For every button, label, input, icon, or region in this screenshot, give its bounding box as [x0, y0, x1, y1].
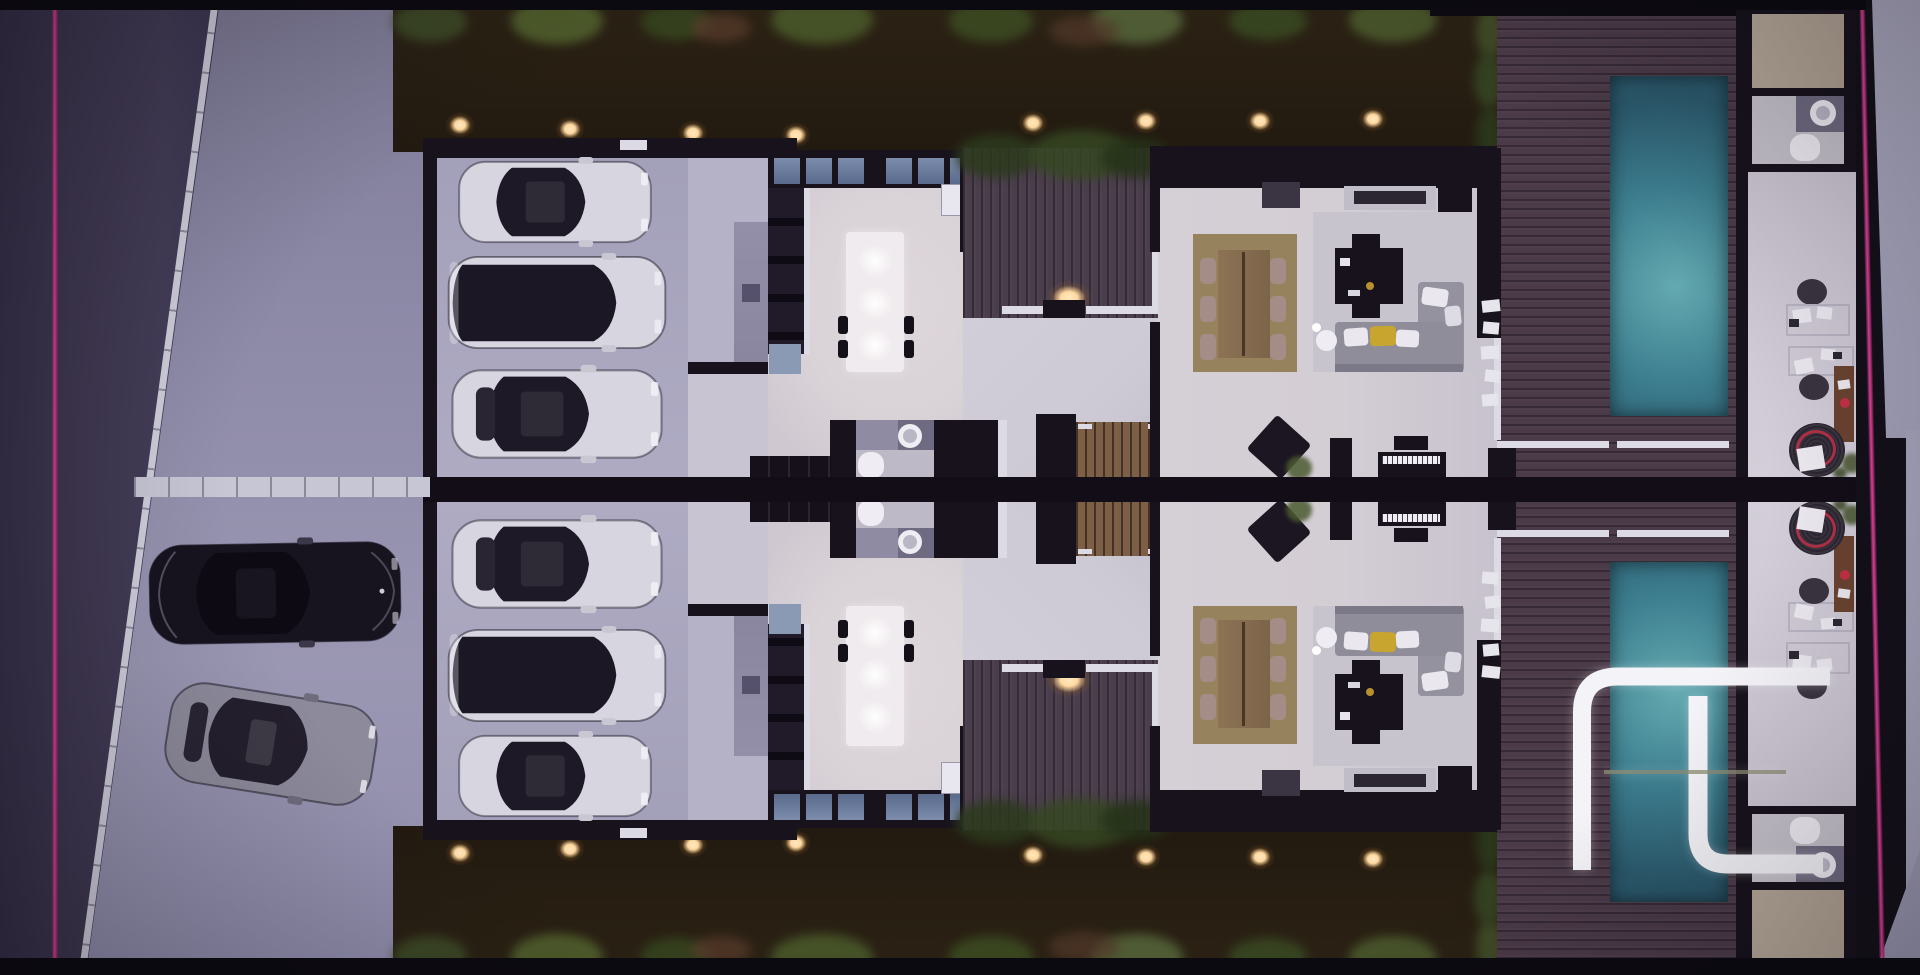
sink-basin: [903, 535, 917, 549]
living-west-wall: [1150, 322, 1160, 480]
media-console: [1344, 768, 1436, 792]
towel: [1481, 618, 1500, 632]
hall-closet: [946, 498, 998, 558]
garden-light: [1358, 106, 1388, 132]
garden-light: [1018, 110, 1048, 136]
table-seam: [1242, 622, 1245, 726]
tray: [1340, 712, 1350, 720]
toilet: [858, 500, 884, 526]
piano-keys: [1382, 514, 1440, 522]
property-line-left: [52, 0, 58, 975]
coffee-table: [1352, 304, 1380, 318]
daybed-cushion: [1796, 445, 1825, 472]
pillow-yellow: [1370, 326, 1397, 347]
towel: [1482, 393, 1499, 406]
bath-wall: [934, 498, 946, 558]
garden-strip: [393, 826, 1497, 972]
decor-bowl: [1366, 282, 1374, 290]
garage-car-suv: [446, 254, 668, 352]
sink-basin: [1816, 106, 1830, 120]
bar-stool: [904, 620, 914, 638]
foliage-red: [1049, 16, 1119, 46]
island-light: [857, 700, 893, 734]
towel: [1483, 643, 1500, 656]
dining-chair: [1270, 694, 1286, 720]
deck-walkway: [963, 148, 1160, 318]
office-chair: [1799, 578, 1829, 604]
towel: [1481, 299, 1500, 313]
bar-stool: [838, 620, 848, 638]
deck-trim: [1497, 441, 1609, 448]
bath-wall: [934, 420, 946, 480]
tv-screen: [1354, 191, 1426, 204]
kitchen-window: [806, 794, 832, 820]
center-walkway: [134, 477, 430, 497]
towel: [1481, 345, 1500, 359]
bottom-frame-bar: [0, 958, 1920, 975]
garden-light: [445, 112, 475, 138]
papers: [1816, 306, 1832, 320]
garden-light: [1131, 108, 1161, 134]
dining-chair: [1270, 618, 1286, 644]
piano-keys: [1382, 456, 1440, 464]
outdoor-sink: [742, 676, 760, 694]
bath-wall: [830, 498, 856, 558]
pillow: [1343, 327, 1368, 347]
garden-light: [1358, 846, 1388, 872]
desk-item: [1833, 619, 1842, 626]
red-decor: [1840, 398, 1850, 408]
garden-light: [445, 840, 475, 866]
coffee-table: [1352, 730, 1380, 744]
dining-chair: [1200, 694, 1216, 720]
decor-bowl: [1366, 688, 1374, 696]
garden-light: [1131, 844, 1161, 870]
office-chair: [1797, 279, 1827, 305]
sink: [1810, 100, 1836, 126]
living-west-wall: [1150, 498, 1160, 656]
sofa-back: [1335, 364, 1463, 372]
side-table: [1316, 330, 1337, 351]
office-chair: [1799, 374, 1829, 400]
counter-edge: [804, 624, 810, 790]
garage-car-suv: [446, 626, 668, 724]
deck-walkway: [963, 660, 1160, 830]
kitchen-window: [838, 158, 864, 184]
napkin: [1837, 379, 1850, 390]
corner-planter: [1488, 448, 1516, 478]
island-light: [857, 286, 893, 320]
garden-light: [1245, 108, 1275, 134]
dining-chair: [1270, 296, 1286, 322]
pillow-yellow: [1370, 632, 1397, 653]
street-car-black: [145, 536, 405, 650]
toilet: [1790, 134, 1820, 161]
stair-nosing: [1078, 424, 1092, 429]
sink: [898, 424, 922, 448]
outdoor-sink: [742, 284, 760, 302]
bath-wall: [830, 420, 856, 480]
island-light: [857, 658, 893, 692]
outdoor-counter: [734, 616, 768, 756]
red-decor: [1840, 570, 1850, 580]
sink: [898, 530, 922, 554]
counter-edge: [804, 188, 810, 354]
hall-closet: [946, 420, 998, 480]
tray: [1348, 290, 1360, 296]
coffee-table: [1352, 234, 1380, 248]
side-table: [1316, 627, 1337, 648]
architectural-render: [0, 0, 1920, 975]
coffee-table: [1335, 674, 1403, 730]
tray: [1340, 258, 1350, 266]
mirror-divider-wall: [423, 477, 1868, 502]
bar-stool: [838, 644, 848, 662]
sofa-back: [1335, 606, 1463, 614]
stair-landing: [1036, 414, 1076, 480]
living-west-wall: [1150, 726, 1160, 790]
towel: [1481, 665, 1500, 679]
garage-side-wall: [423, 138, 437, 480]
garage-car-white-1: [456, 158, 654, 246]
kitchen-window: [774, 158, 800, 184]
storage-room: [1752, 14, 1844, 88]
hall-door: [998, 420, 1007, 478]
side-table-decor: [1312, 646, 1321, 655]
kitchen-window: [774, 794, 800, 820]
desk-item: [1789, 319, 1799, 327]
desk-item: [1833, 352, 1842, 359]
tv-cabinet: [1262, 182, 1300, 208]
wall-column: [1438, 182, 1472, 212]
media-console: [1344, 186, 1436, 210]
pool: [1610, 76, 1728, 416]
table-seam: [1242, 252, 1245, 356]
garage-car-white-2: [446, 516, 668, 612]
dining-chair: [1200, 296, 1216, 322]
logo-monogram: [1548, 638, 1868, 898]
console-table: [1330, 498, 1352, 540]
throw: [1444, 651, 1462, 673]
garden-light: [1018, 842, 1048, 868]
toilet: [858, 452, 884, 478]
napkin: [1837, 588, 1850, 599]
pillow: [1343, 631, 1368, 651]
foliage: [955, 800, 1039, 844]
outdoor-counter: [734, 222, 768, 362]
garage-gate: [620, 828, 647, 838]
dining-table: [1218, 250, 1270, 358]
bar-stool: [838, 340, 848, 358]
tv-cabinet: [1262, 770, 1300, 796]
kitchen-window: [806, 158, 832, 184]
deck-trim: [1086, 306, 1156, 314]
living-front-wall: [1150, 790, 1500, 832]
garden-light: [1245, 844, 1275, 870]
bar-stool: [838, 316, 848, 334]
tv-screen: [1354, 774, 1426, 787]
dining-chair: [1270, 656, 1286, 682]
console-table: [1330, 438, 1352, 480]
kitchen-window: [918, 158, 944, 184]
side-table-decor: [1312, 323, 1321, 332]
deck-trim: [1617, 530, 1729, 537]
island-light: [857, 328, 893, 362]
wall-column: [1438, 766, 1472, 796]
bar-stool: [904, 644, 914, 662]
island-light: [857, 616, 893, 650]
kitchen-counter: [768, 624, 804, 790]
storage-room: [1752, 890, 1844, 964]
towel: [1482, 571, 1499, 584]
garage-side-wall: [423, 498, 437, 840]
pillow: [1396, 329, 1420, 347]
kitchen-window: [886, 158, 912, 184]
pillow: [1396, 630, 1420, 648]
papers: [1794, 357, 1815, 374]
top-frame-bar: [0, 0, 1866, 10]
garage-front-wall: [423, 138, 797, 158]
towel: [1484, 369, 1500, 383]
pillow: [1421, 286, 1449, 307]
corner-planter: [1488, 500, 1516, 530]
kitchen-cabinet: [769, 344, 801, 374]
deck-trim: [1617, 441, 1729, 448]
garage-gate: [620, 140, 647, 150]
tray: [1348, 682, 1360, 688]
pillow: [1421, 670, 1449, 691]
piano-bench: [1394, 528, 1428, 542]
foliage-red: [691, 14, 751, 42]
bar-stool: [904, 316, 914, 334]
coffee-table: [1352, 660, 1380, 674]
deck-trim: [1086, 664, 1156, 672]
dining-chair: [1200, 618, 1216, 644]
kitchen-window: [838, 794, 864, 820]
garage-car-white-2: [446, 366, 668, 462]
logo-stroke-l: [1698, 696, 1823, 864]
dining-chair: [1270, 258, 1286, 284]
kitchen-window: [918, 794, 944, 820]
dining-chair: [1200, 334, 1216, 360]
deck-trim: [1497, 530, 1609, 537]
towel: [1484, 595, 1500, 609]
piano-bench: [1394, 436, 1428, 450]
garage-front-wall: [423, 820, 797, 840]
towel: [1483, 321, 1500, 334]
unit-top: [0, 0, 1920, 489]
kitchen-window: [886, 794, 912, 820]
dining-chair: [1270, 334, 1286, 360]
kitchen-island: [846, 232, 904, 372]
kitchen-island: [846, 606, 904, 746]
stair-nosing: [1078, 549, 1092, 554]
papers: [1794, 603, 1815, 620]
desk: [1786, 304, 1850, 336]
island-light: [857, 244, 893, 278]
kitchen-counter: [768, 188, 804, 354]
foliage: [955, 134, 1039, 178]
sink-basin: [903, 429, 917, 443]
garage-car-white-1: [456, 732, 654, 820]
kitchen-cabinet: [769, 604, 801, 634]
daybed-cushion: [1796, 506, 1825, 533]
stair-landing: [1036, 498, 1076, 564]
bar-stool: [904, 340, 914, 358]
hall-door: [998, 500, 1007, 558]
throw: [1444, 305, 1462, 327]
dining-table: [1218, 620, 1270, 728]
dining-chair: [1200, 258, 1216, 284]
living-west-wall: [1150, 188, 1160, 252]
coffee-table: [1335, 248, 1403, 304]
dining-chair: [1200, 656, 1216, 682]
garden-strip: [393, 6, 1497, 152]
